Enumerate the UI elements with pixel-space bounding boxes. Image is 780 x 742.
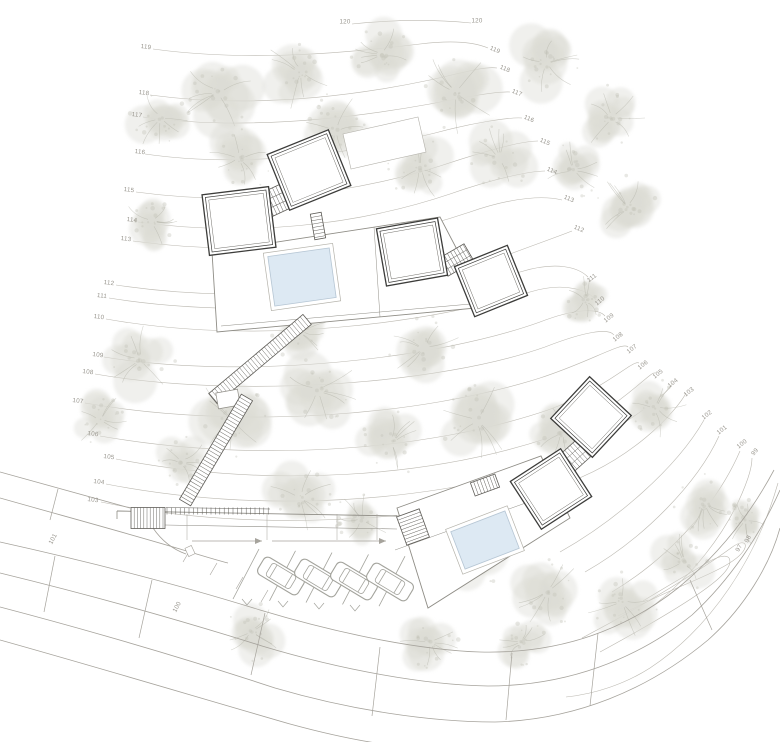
contour-label: 119 bbox=[140, 43, 152, 51]
contour-label: 100 bbox=[736, 438, 749, 451]
contour-label: 109 bbox=[603, 312, 616, 325]
road-edge bbox=[153, 528, 186, 554]
contour-label: 109 bbox=[92, 351, 104, 359]
contour-label: 108 bbox=[82, 368, 94, 376]
stall-divider bbox=[233, 549, 259, 599]
stall-tick bbox=[261, 590, 268, 602]
cabin bbox=[376, 218, 447, 286]
contour-label: 113 bbox=[120, 235, 132, 243]
contour-label: 103 bbox=[87, 496, 99, 504]
contour-label: 118 bbox=[138, 89, 150, 97]
contour-label: 104 bbox=[667, 377, 680, 390]
arrow-head-icon bbox=[379, 538, 386, 544]
contour-label: 105 bbox=[103, 453, 115, 461]
tree-canopy bbox=[263, 43, 328, 109]
parked-cars bbox=[256, 555, 416, 602]
road-joint-line bbox=[50, 489, 58, 520]
tree-canopy bbox=[441, 381, 515, 458]
contour-label: 111 bbox=[586, 272, 599, 284]
contour-label: 116 bbox=[134, 148, 146, 156]
tree-canopy bbox=[629, 379, 686, 437]
contour-label: 110 bbox=[93, 313, 105, 321]
contour-label: 117 bbox=[131, 111, 143, 119]
site-plan-canvas: 1201201191181171161151141131121111101091… bbox=[0, 0, 780, 742]
contour-label: 108 bbox=[612, 331, 625, 344]
stall-tick bbox=[210, 563, 217, 575]
tree-canopy bbox=[597, 174, 661, 239]
contour-label: 106 bbox=[87, 430, 99, 438]
contour-label: 111 bbox=[97, 292, 108, 300]
contour-label: 113 bbox=[563, 194, 576, 205]
tree-canopy bbox=[280, 351, 356, 429]
tree-canopy bbox=[355, 407, 422, 473]
tree-canopy bbox=[125, 95, 191, 144]
site-plan: 1201201191181171161151141131121111101091… bbox=[0, 0, 780, 742]
contour-label: 112 bbox=[103, 279, 115, 287]
buildings bbox=[131, 117, 631, 608]
road-edge bbox=[0, 640, 450, 742]
contour-label: 116 bbox=[523, 114, 536, 125]
wheel-stop bbox=[350, 605, 360, 611]
contour-label: 119 bbox=[489, 45, 502, 56]
entry-step bbox=[185, 545, 195, 556]
contour-line bbox=[95, 331, 614, 386]
ladder-stair bbox=[310, 212, 325, 240]
tree-canopy bbox=[388, 315, 458, 383]
tree-canopy bbox=[74, 388, 127, 443]
tree-canopy bbox=[129, 198, 178, 251]
contour-label: 97 bbox=[734, 543, 744, 553]
contour-label: 112 bbox=[573, 224, 586, 235]
contour-label: 106 bbox=[637, 359, 650, 372]
tree-canopy bbox=[588, 570, 658, 639]
contour-label: 105 bbox=[652, 368, 665, 381]
contour-label: 115 bbox=[123, 186, 135, 194]
contour-label: 99 bbox=[750, 447, 760, 457]
contour-label: 114 bbox=[126, 216, 138, 224]
cabin bbox=[202, 187, 276, 256]
contour-label: 101 bbox=[716, 424, 729, 437]
road-joint-line bbox=[139, 580, 152, 638]
road-elevation-label: 101 bbox=[47, 532, 59, 545]
road-joint-line bbox=[372, 647, 380, 716]
road bbox=[0, 470, 780, 742]
tree-canopy bbox=[510, 558, 578, 627]
contour-label: 102 bbox=[701, 409, 714, 422]
contour-label: 120 bbox=[471, 18, 482, 25]
arrow-head-icon bbox=[255, 538, 262, 544]
road-edge bbox=[0, 472, 130, 508]
wheel-stop bbox=[314, 603, 324, 609]
tree-canopy bbox=[582, 84, 645, 148]
tree-canopy bbox=[230, 602, 286, 667]
contour-label: 118 bbox=[499, 64, 512, 75]
tree-canopy bbox=[673, 473, 731, 540]
road-elevation-label: 100 bbox=[171, 600, 183, 613]
contour-line bbox=[153, 42, 488, 56]
pool bbox=[263, 243, 340, 310]
contour-label: 103 bbox=[683, 386, 696, 399]
contour-label: 104 bbox=[93, 478, 105, 486]
contour-label: 115 bbox=[539, 137, 552, 148]
wheel-stop bbox=[278, 601, 288, 607]
tree-canopy bbox=[469, 119, 539, 187]
tree-canopy bbox=[400, 617, 461, 672]
contour-label: 107 bbox=[72, 397, 84, 405]
railing-rail bbox=[166, 508, 270, 510]
boardwalk-stair bbox=[131, 508, 165, 529]
tree-canopy bbox=[350, 17, 414, 83]
contour-label: 107 bbox=[626, 343, 639, 356]
tree-canopy bbox=[335, 494, 386, 546]
tree-canopy bbox=[210, 121, 270, 186]
contour-label: 120 bbox=[339, 19, 350, 26]
tree-canopy bbox=[498, 620, 552, 669]
